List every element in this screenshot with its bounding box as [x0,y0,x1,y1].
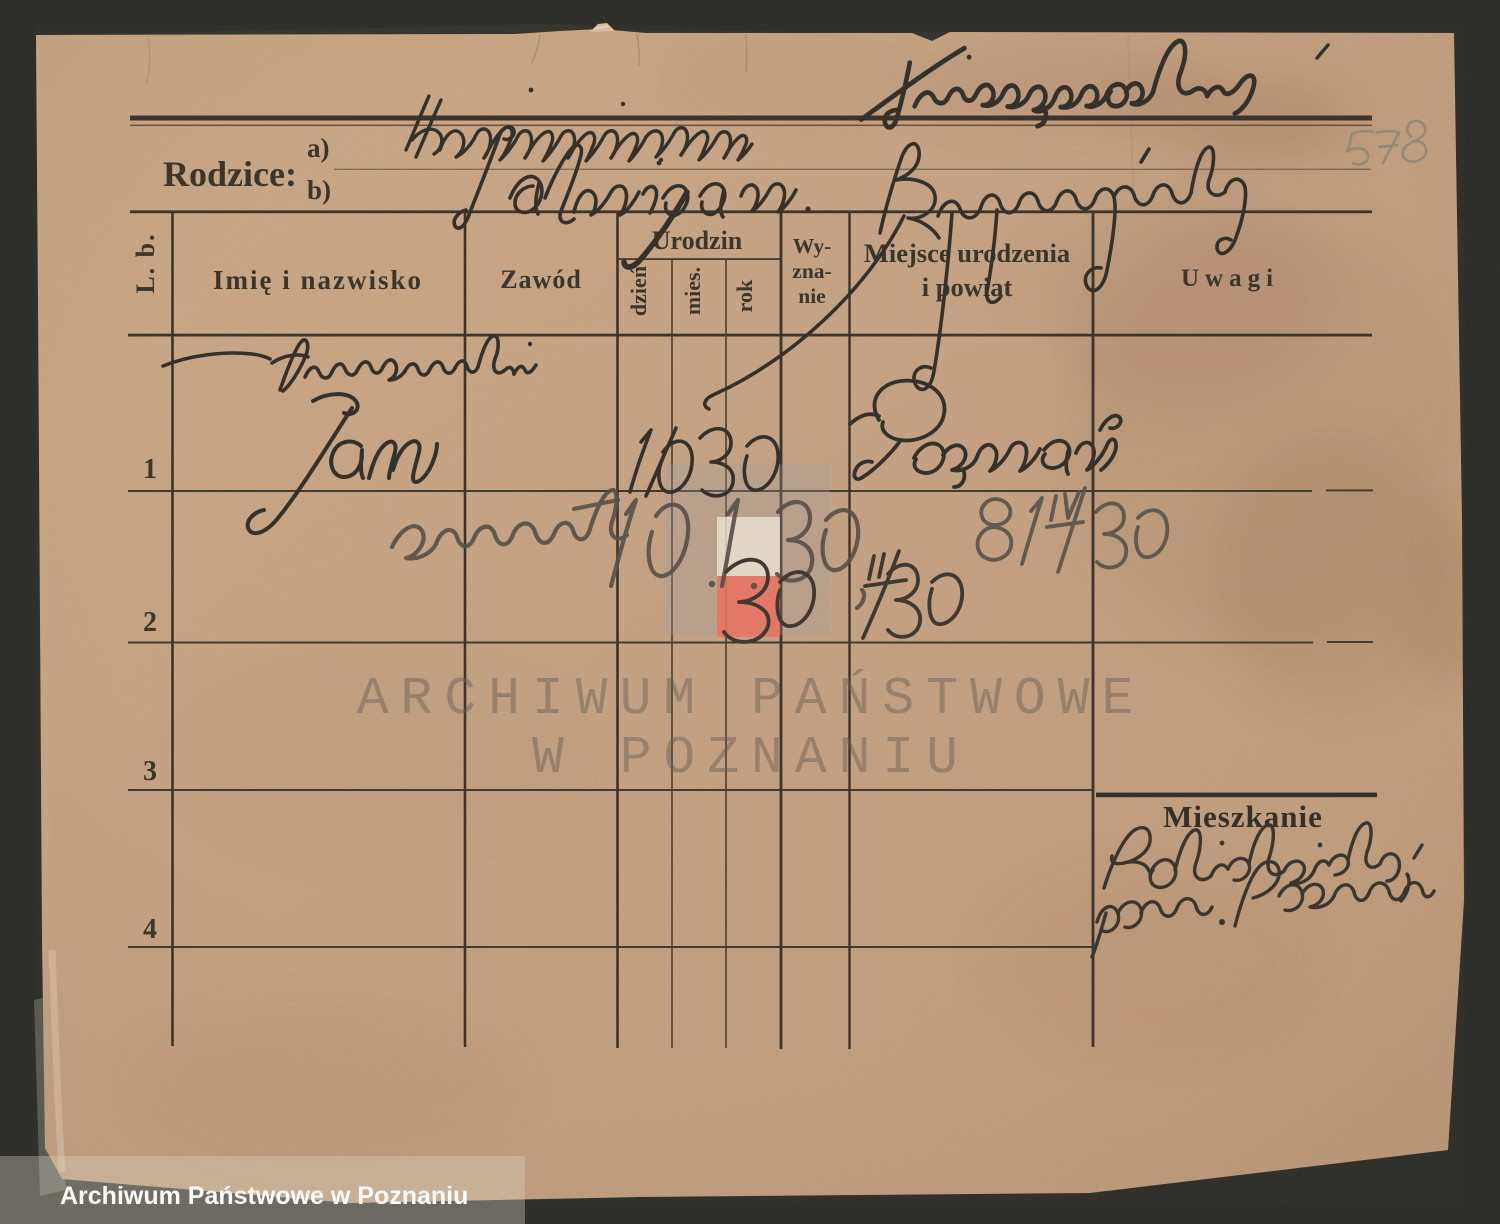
svg-text:Miejsce urodzenia: Miejsce urodzenia [864,238,1070,268]
svg-text:zna-: zna- [792,259,831,283]
svg-text:Wy-: Wy- [793,234,832,258]
svg-text:rok: rok [732,279,757,312]
svg-text:ARCHIWUM PAŃSTWOWE: ARCHIWUM PAŃSTWOWE [357,668,1146,729]
svg-text:nie: nie [798,284,825,308]
svg-text:Mieszkanie: Mieszkanie [1163,799,1323,834]
svg-text:mies.: mies. [680,267,705,315]
svg-text:Archiwum Państwowe w Poznaniu: Archiwum Państwowe w Poznaniu [60,1182,468,1210]
svg-text:4: 4 [143,914,157,945]
svg-text:dzień: dzień [626,266,651,316]
svg-text:Zawód: Zawód [500,265,582,294]
svg-text:Imię i nazwisko: Imię i nazwisko [213,265,423,295]
svg-text:Uwagi: Uwagi [1181,265,1279,292]
svg-text:Rodzice:: Rodzice: [163,154,297,194]
svg-text:3: 3 [143,756,157,787]
svg-text:1: 1 [143,454,157,485]
svg-text:2: 2 [143,607,157,638]
svg-text:W POZNANIU: W POZNANIU [532,728,970,788]
svg-text:L. b.: L. b. [131,232,160,293]
svg-text:a): a) [307,133,330,163]
svg-text:b): b) [307,175,331,205]
